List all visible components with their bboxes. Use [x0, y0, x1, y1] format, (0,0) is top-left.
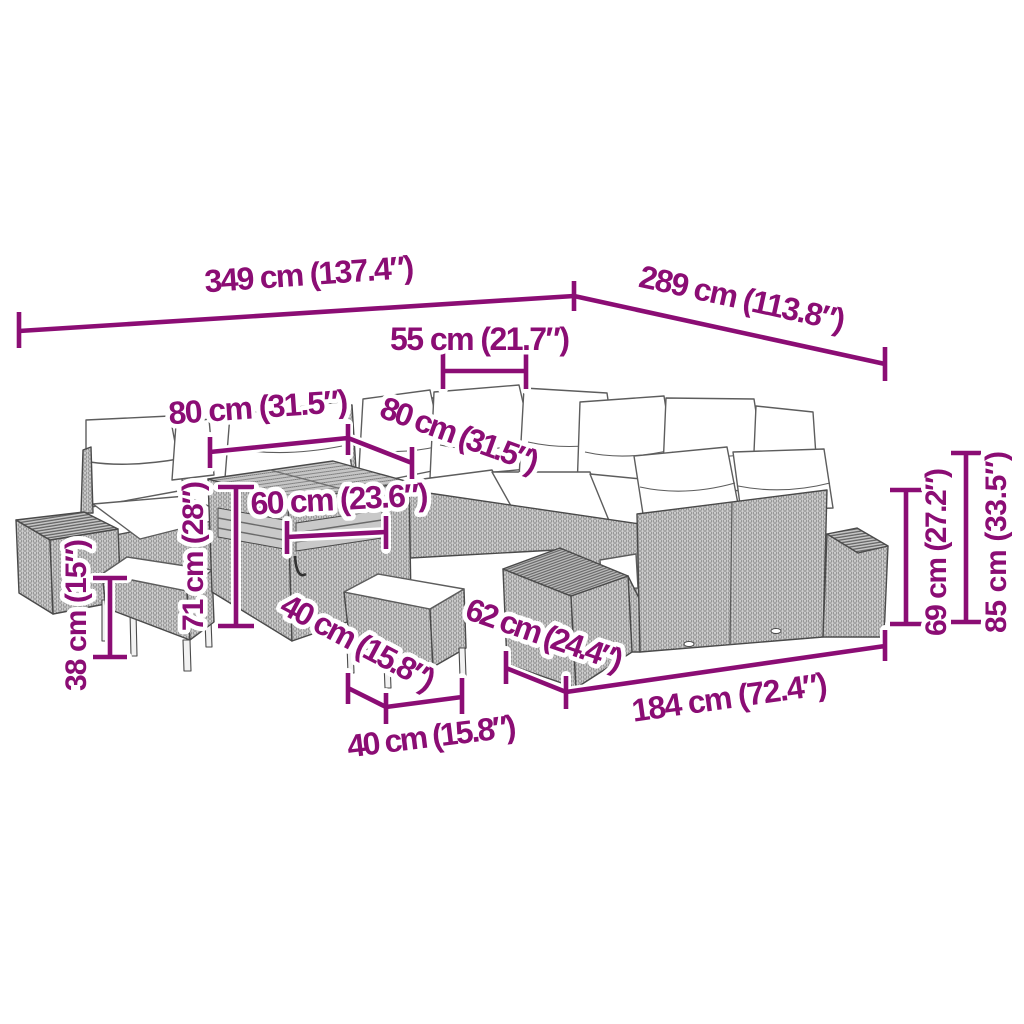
svg-text:55 cm (21.7″): 55 cm (21.7″) — [390, 321, 570, 357]
svg-text:71 cm (28″): 71 cm (28″) — [177, 481, 210, 631]
svg-text:38 cm (15″): 38 cm (15″) — [60, 539, 93, 691]
svg-text:69 cm (27.2″): 69 cm (27.2″) — [920, 468, 953, 636]
svg-text:85 cm (33.5″): 85 cm (33.5″) — [980, 451, 1013, 633]
